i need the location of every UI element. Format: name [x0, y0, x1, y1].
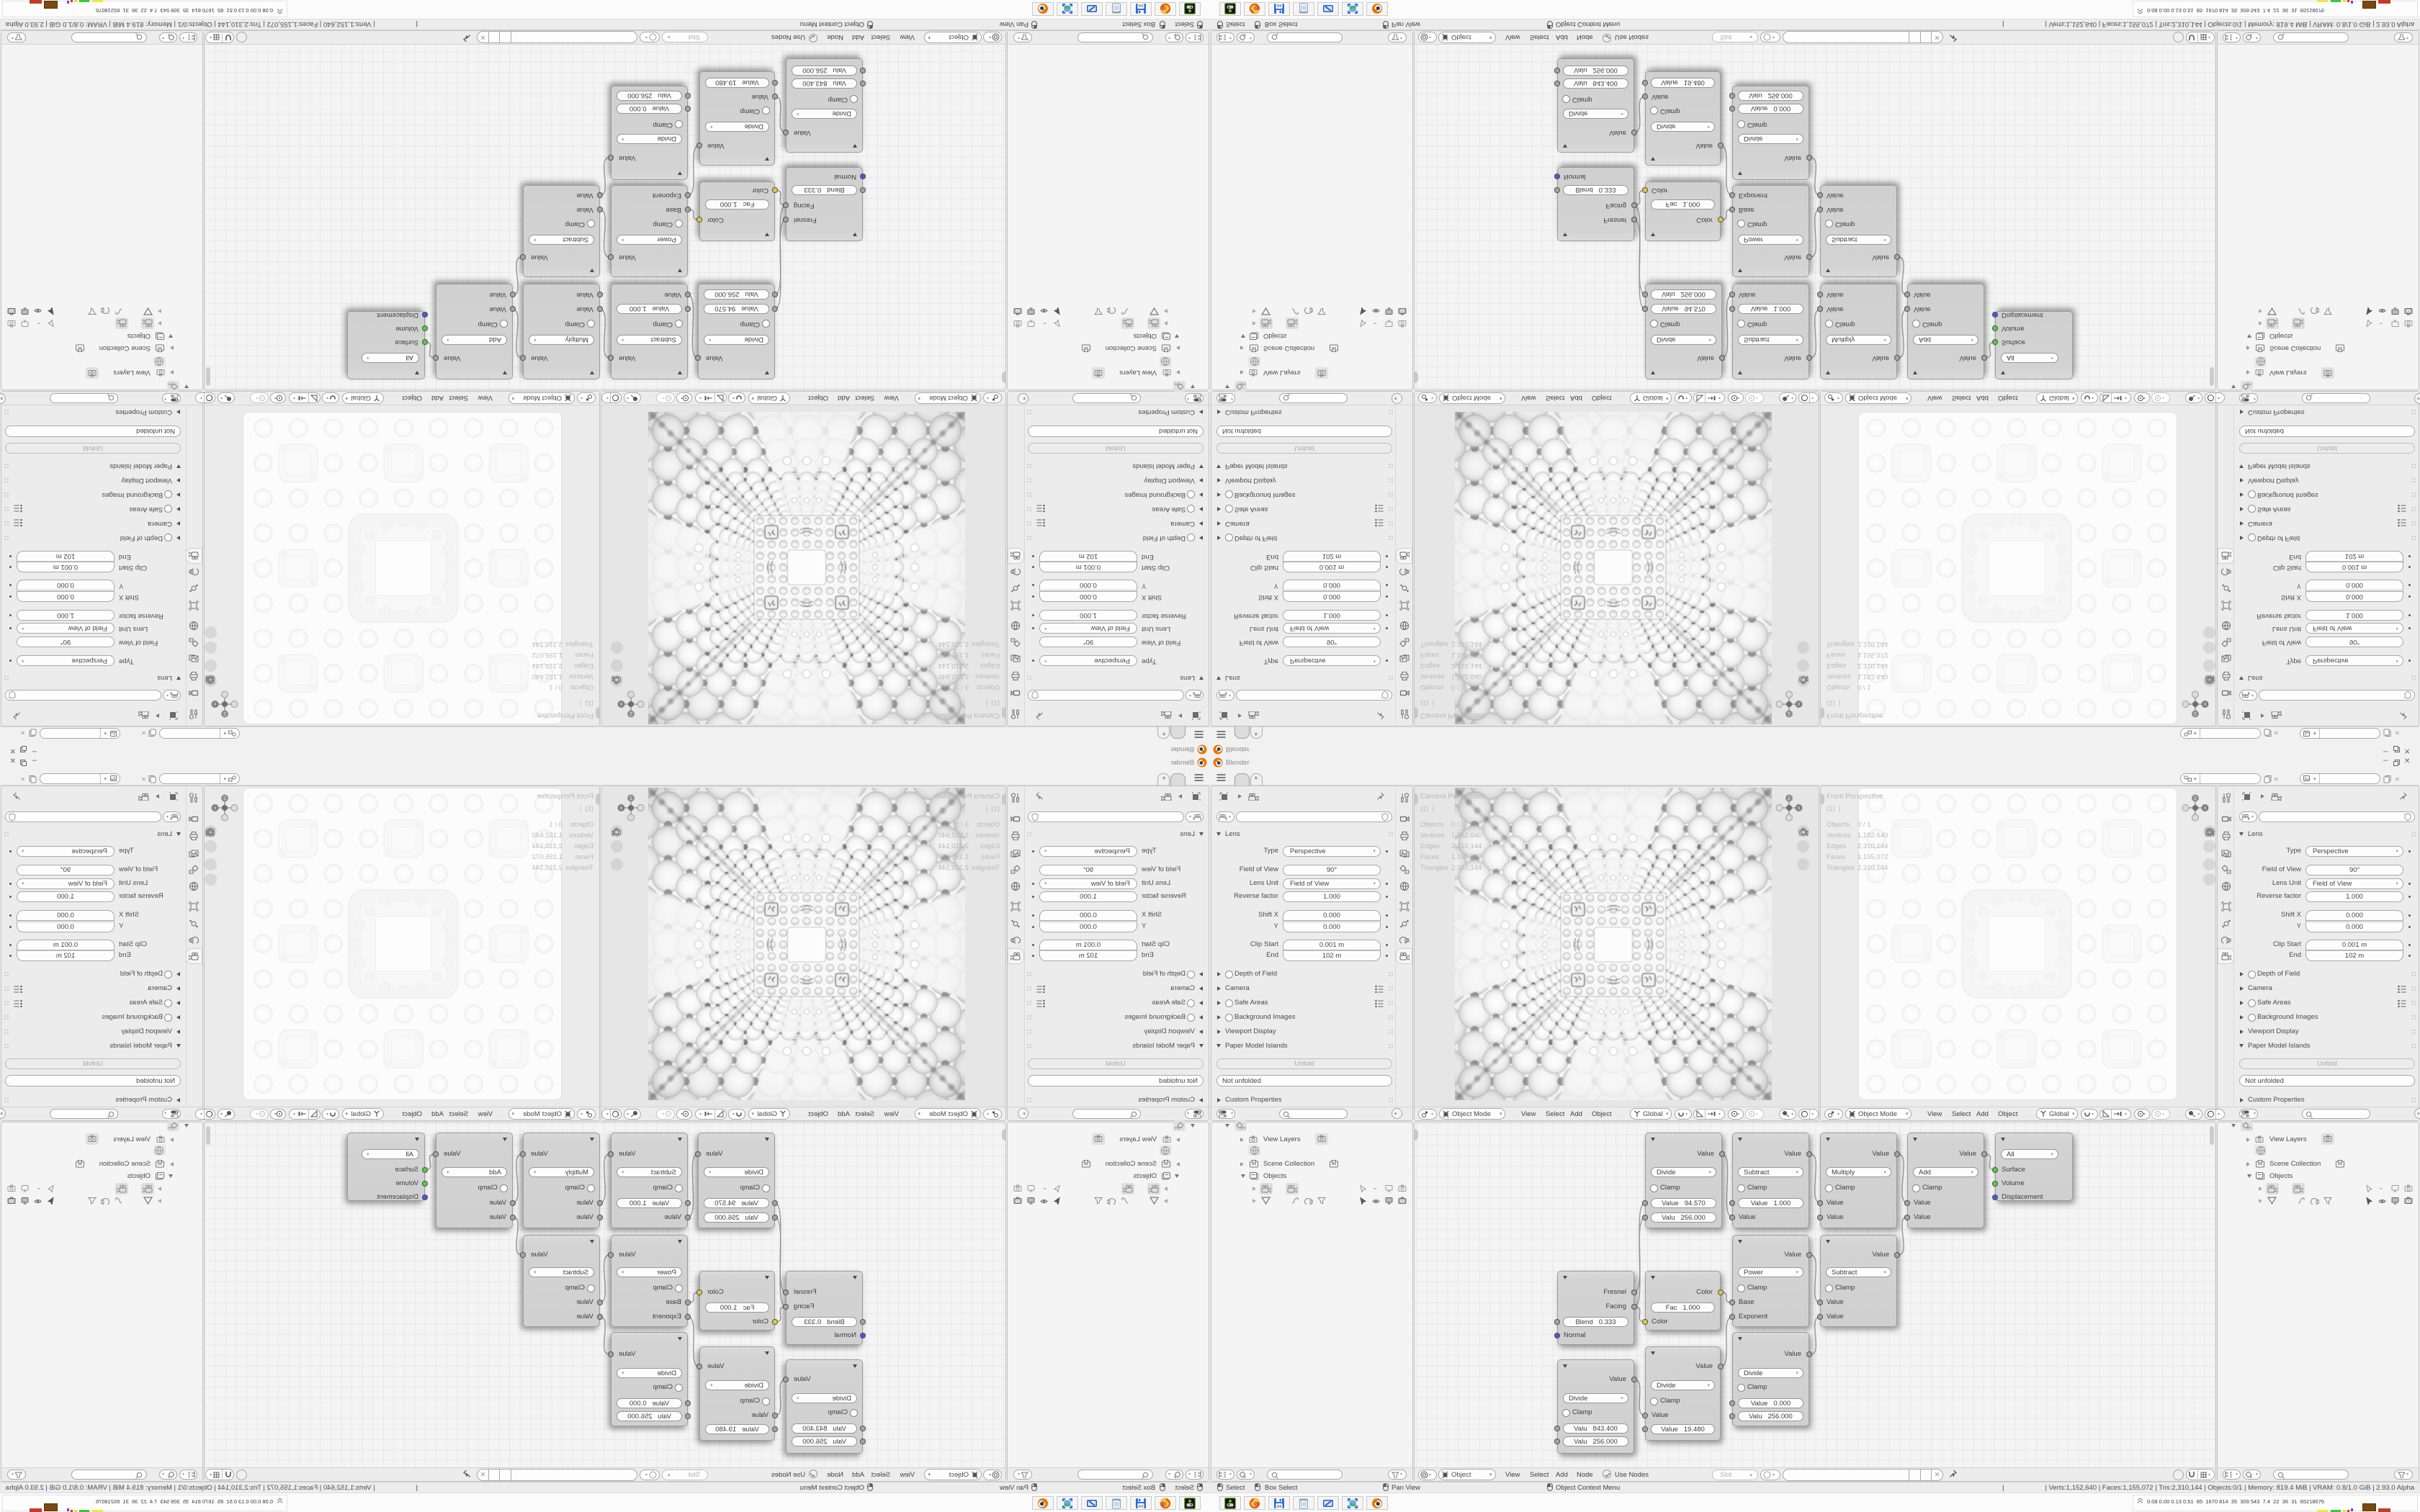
- svg-text:X: X: [2203, 807, 2206, 811]
- svg-text:X: X: [619, 701, 622, 706]
- svg-text:Z: Z: [2194, 711, 2197, 715]
- svg-text:Z: Z: [223, 797, 226, 801]
- svg-text:X: X: [2203, 701, 2206, 706]
- svg-text:Z: Z: [629, 797, 632, 801]
- svg-text:Z: Z: [629, 711, 632, 715]
- svg-text:Z: Z: [2194, 797, 2197, 801]
- svg-text:X: X: [1797, 701, 1800, 706]
- svg-text:X: X: [619, 807, 622, 811]
- svg-text:X: X: [1797, 807, 1800, 811]
- svg-text:64: 64: [1277, 1505, 1281, 1509]
- svg-text:Z: Z: [1788, 797, 1791, 801]
- svg-text:Z: Z: [1788, 711, 1791, 715]
- svg-text:64: 64: [1277, 4, 1281, 8]
- svg-text:X: X: [213, 807, 216, 811]
- svg-text:64: 64: [1139, 1505, 1143, 1509]
